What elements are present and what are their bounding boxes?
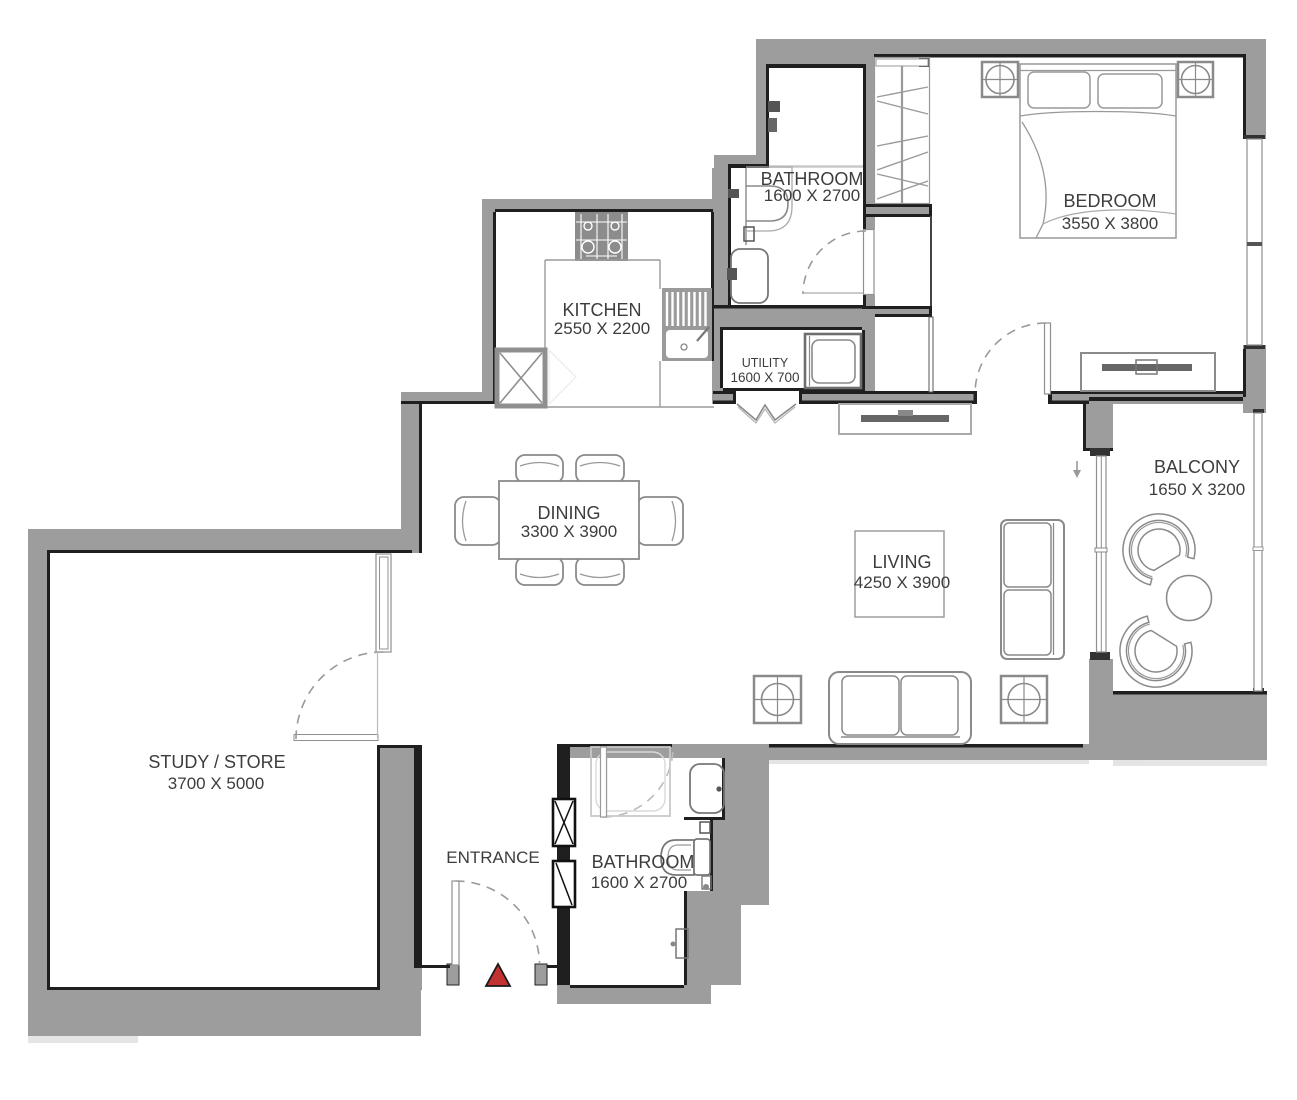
svg-text:4250 X 3900: 4250 X 3900 [854,573,950,592]
svg-text:1600 X 2700: 1600 X 2700 [591,873,687,892]
svg-text:2550 X 2200: 2550 X 2200 [554,319,650,338]
svg-text:STUDY / STORE: STUDY / STORE [148,752,285,772]
svg-text:3550 X 3800: 3550 X 3800 [1062,214,1158,233]
svg-text:BALCONY: BALCONY [1154,457,1240,477]
svg-text:DINING: DINING [538,503,601,523]
svg-text:1600 X 700: 1600 X 700 [730,370,799,385]
svg-text:1600 X 2700: 1600 X 2700 [764,186,860,205]
svg-text:1650 X 3200: 1650 X 3200 [1149,480,1245,499]
svg-text:BEDROOM: BEDROOM [1063,191,1156,211]
svg-text:3700 X 5000: 3700 X 5000 [168,774,264,793]
svg-text:KITCHEN: KITCHEN [562,300,641,320]
svg-text:3300 X 3900: 3300 X 3900 [521,522,617,541]
svg-text:BATHROOM: BATHROOM [592,852,695,872]
svg-text:ENTRANCE: ENTRANCE [446,848,540,867]
svg-text:UTILITY: UTILITY [742,356,789,370]
svg-text:LIVING: LIVING [872,552,931,572]
